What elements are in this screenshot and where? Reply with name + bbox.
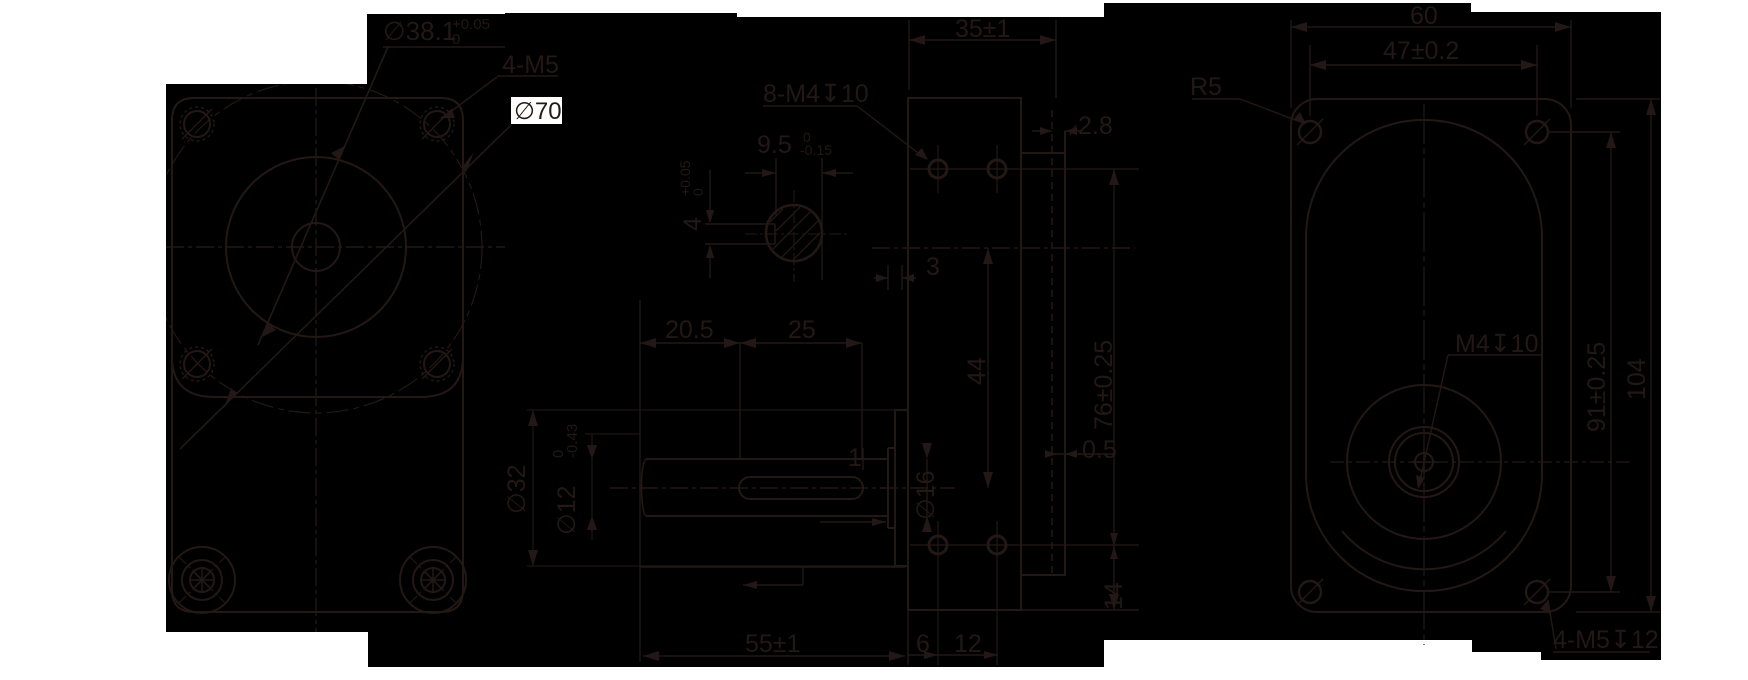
svg-text:60: 60 — [1410, 2, 1438, 30]
svg-text:3: 3 — [926, 253, 940, 281]
svg-text:20.5: 20.5 — [665, 316, 714, 344]
svg-text:4-M5: 4-M5 — [502, 51, 559, 79]
svg-text:12: 12 — [954, 630, 982, 658]
svg-text:14: 14 — [1100, 582, 1128, 610]
svg-text:35±1: 35±1 — [955, 15, 1010, 43]
svg-text:M4↧10: M4↧10 — [1455, 330, 1538, 358]
svg-text:4-M5↧12: 4-M5↧12 — [1553, 626, 1659, 654]
svg-text:25: 25 — [788, 316, 816, 344]
svg-text:∅12: ∅12 — [553, 485, 581, 535]
svg-text:47±0.2: 47±0.2 — [1383, 37, 1459, 65]
svg-text:44: 44 — [963, 357, 991, 385]
svg-text:-0.43: -0.43 — [564, 424, 581, 458]
svg-text:1: 1 — [848, 444, 862, 472]
svg-text:76±0.25: 76±0.25 — [1090, 340, 1118, 430]
svg-text:∅38.1: ∅38.1 — [383, 16, 456, 46]
svg-text:2.8: 2.8 — [1078, 112, 1113, 140]
svg-text:104: 104 — [1623, 358, 1651, 400]
svg-text:6: 6 — [916, 630, 930, 658]
svg-text:55±1: 55±1 — [745, 630, 800, 658]
svg-text:4: 4 — [679, 217, 707, 231]
svg-text:∅32: ∅32 — [503, 464, 531, 514]
svg-text:9.5: 9.5 — [757, 131, 792, 159]
svg-text:∅70: ∅70 — [514, 98, 562, 125]
svg-text:0: 0 — [452, 31, 460, 48]
svg-text:0: 0 — [690, 188, 706, 196]
svg-text:-0.15: -0.15 — [800, 142, 832, 158]
svg-text:91±0.25: 91±0.25 — [1583, 342, 1611, 432]
svg-text:8-M4↧10: 8-M4↧10 — [763, 80, 869, 108]
svg-text:R5: R5 — [1190, 73, 1222, 101]
svg-text:∅16: ∅16 — [912, 470, 940, 520]
svg-text:0.5: 0.5 — [1082, 436, 1117, 464]
